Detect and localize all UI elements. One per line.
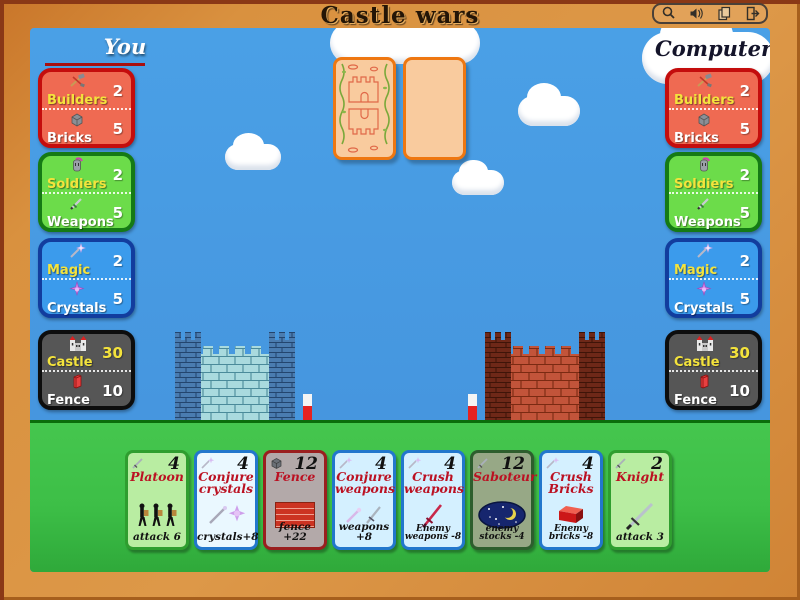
your-castle [175, 332, 295, 420]
you-castle-panel: 30 Castle 10 Fence [38, 330, 135, 410]
computer-label: Computer [655, 36, 765, 61]
you-crystals-count: 5 [113, 290, 123, 308]
computer-castle-panel: 30 Castle 10 Fence [665, 330, 762, 410]
sound-icon[interactable] [688, 6, 705, 21]
crystal-icon [695, 281, 713, 298]
magic-wand-icon [695, 243, 713, 260]
computer-castle-count: 30 [729, 344, 750, 362]
card-name: Saboteur [473, 471, 531, 483]
fence-label: Fence [674, 393, 717, 408]
card-effect: fence +22 [266, 523, 324, 543]
builders-label: Builders [47, 93, 107, 108]
you-castle-count: 30 [102, 344, 123, 362]
card-name: Platoon [128, 471, 186, 483]
enemy-castle [485, 332, 605, 420]
castle-label: Castle [47, 355, 93, 370]
weapons-label: Weapons [674, 215, 741, 230]
card-conjure-weapons[interactable]: 4 Conjure weapons weapons +8 [332, 450, 396, 550]
card-platoon[interactable]: 4 Platoon attack 6 [125, 450, 189, 550]
cloud [225, 144, 281, 170]
computer-soldiers-count: 2 [740, 166, 750, 184]
bricks-label: Bricks [674, 131, 719, 146]
you-builders-panel: 2 Builders 5 Bricks [38, 68, 135, 148]
castle-label: Castle [674, 355, 720, 370]
wand-crystal-art [197, 499, 255, 531]
computer-builders-count: 2 [740, 82, 750, 100]
card-conjure-crystals[interactable]: 4 Conjure crystals crystals+8 [194, 450, 258, 550]
computer-fence-count: 10 [729, 382, 750, 400]
computer-bricks-count: 5 [740, 120, 750, 138]
fence-icon [695, 373, 713, 390]
computer-crystals-count: 5 [740, 290, 750, 308]
sword-art [611, 499, 669, 531]
your-fence-post [303, 394, 312, 420]
card-saboteur[interactable]: 12 Saboteur enemy stocks -4 [470, 450, 534, 550]
crystal-icon [68, 281, 86, 298]
magic-wand-icon [68, 243, 86, 260]
you-magic-panel: 2 Magic 5 Crystals [38, 238, 135, 318]
card-effect: attack 6 [128, 533, 186, 543]
magic-label: Magic [674, 263, 717, 278]
computer-magic-count: 2 [740, 252, 750, 270]
builders-label: Builders [674, 93, 734, 108]
soldier-helmet-icon [68, 157, 86, 174]
soldiers-label: Soldiers [47, 177, 106, 192]
bricks-label: Bricks [47, 131, 92, 146]
soldiers-art [128, 499, 186, 531]
builders-icon [68, 73, 86, 90]
cloud [518, 96, 580, 126]
soldier-helmet-icon [695, 157, 713, 174]
card-name: Crush weapons [404, 471, 462, 495]
magnifier-icon[interactable] [660, 6, 677, 21]
builders-icon [695, 73, 713, 90]
you-label: You [70, 34, 180, 59]
you-builders-count: 2 [113, 82, 123, 100]
computer-magic-panel: 2 Magic 5 Crystals [665, 238, 762, 318]
weapon-sword-icon [68, 195, 86, 212]
card-crush-weapons[interactable]: 4 Crush weapons Enemy weapons -8 [401, 450, 465, 550]
card-name: Knight [611, 471, 669, 483]
weapons-label: Weapons [47, 215, 114, 230]
you-bricks-count: 5 [113, 120, 123, 138]
cards-icon[interactable] [716, 6, 733, 21]
you-magic-count: 2 [113, 252, 123, 270]
card-knight[interactable]: 2 Knight attack 3 [608, 450, 672, 550]
card-name: Conjure weapons [335, 471, 393, 495]
computer-builders-panel: 2 Builders 5 Bricks [665, 68, 762, 148]
brick-icon [68, 111, 86, 128]
card-effect: weapons +8 [335, 523, 393, 543]
fence-label: Fence [47, 393, 90, 408]
soldiers-label: Soldiers [674, 177, 733, 192]
fence-icon [68, 373, 86, 390]
crystals-label: Crystals [674, 301, 733, 316]
brick-icon [695, 111, 713, 128]
card-effect: enemy stocks -4 [473, 525, 531, 542]
computer-weapons-count: 5 [740, 204, 750, 222]
card-crush-bricks[interactable]: 4 Crush Bricks Enemy bricks -8 [539, 450, 603, 550]
crystals-label: Crystals [47, 301, 106, 316]
game-window: Castle wars You Computer [0, 0, 800, 600]
card-name: Crush Bricks [542, 471, 600, 495]
cloud [452, 170, 504, 195]
card-effect: attack 3 [611, 533, 669, 543]
enemy-fence-post [468, 394, 477, 420]
card-effect: Enemy bricks -8 [542, 525, 600, 542]
you-soldiers-count: 2 [113, 166, 123, 184]
you-fence-count: 10 [102, 382, 123, 400]
castle-icon [68, 335, 86, 352]
deck-card-blank[interactable] [403, 57, 466, 160]
card-hand: 4 Platoon attack 6 4 Conjure crys [125, 450, 672, 550]
castle-icon [695, 335, 713, 352]
deck-card-back[interactable] [333, 57, 396, 160]
card-effect: crystals+8 [197, 533, 255, 543]
weapon-sword-icon [695, 195, 713, 212]
toolbar [652, 3, 768, 24]
card-fence[interactable]: 12 Fence fence +22 [263, 450, 327, 550]
computer-soldiers-panel: 2 Soldiers 5 Weapons [665, 152, 762, 232]
game-area: You Computer 2 Builders 5 Bricks [30, 28, 770, 572]
card-name: Fence [266, 471, 324, 483]
you-weapons-count: 5 [113, 204, 123, 222]
you-underline [45, 63, 145, 66]
card-effect: Enemy weapons -8 [404, 525, 462, 542]
magic-label: Magic [47, 263, 90, 278]
you-soldiers-panel: 2 Soldiers 5 Weapons [38, 152, 135, 232]
exit-icon[interactable] [744, 6, 761, 21]
card-name: Conjure crystals [197, 471, 255, 495]
